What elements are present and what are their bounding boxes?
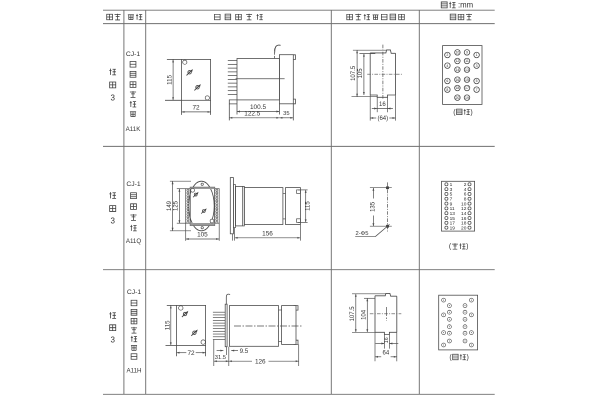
svg-text:8: 8 — [446, 88, 448, 92]
svg-text:2: 2 — [446, 53, 448, 57]
svg-text:115: 115 — [164, 320, 171, 330]
svg-text:16: 16 — [379, 102, 386, 108]
svg-text:(64): (64) — [377, 116, 388, 122]
svg-text:16: 16 — [384, 337, 390, 343]
svg-text:72: 72 — [192, 105, 200, 112]
svg-text:3: 3 — [110, 335, 115, 344]
svg-text:125: 125 — [174, 200, 180, 211]
svg-text:126: 126 — [255, 358, 266, 365]
svg-text:105: 105 — [197, 232, 208, 239]
svg-text:): ) — [466, 244, 468, 251]
svg-text:5: 5 — [476, 79, 478, 83]
svg-text:31.5: 31.5 — [215, 355, 226, 361]
svg-text::mm: :mm — [458, 1, 473, 10]
svg-text:9.5: 9.5 — [240, 348, 249, 355]
svg-text:20: 20 — [461, 225, 467, 231]
svg-text:104: 104 — [361, 309, 367, 320]
svg-text:17: 17 — [465, 86, 469, 90]
svg-text:72: 72 — [187, 350, 195, 357]
svg-text:A11Q: A11Q — [126, 238, 142, 245]
svg-text:135: 135 — [370, 201, 376, 212]
svg-text:19: 19 — [450, 225, 456, 231]
svg-text:A11H: A11H — [126, 367, 141, 374]
svg-text:115: 115 — [167, 74, 174, 84]
svg-text:CJ-1: CJ-1 — [126, 51, 141, 58]
svg-text:107.5: 107.5 — [350, 306, 356, 322]
svg-text:6: 6 — [446, 79, 448, 83]
svg-text:107.5: 107.5 — [351, 65, 357, 81]
svg-text:2-Φ5: 2-Φ5 — [356, 231, 369, 237]
svg-text:9: 9 — [466, 51, 468, 55]
svg-text:149: 149 — [167, 200, 173, 211]
svg-text:3: 3 — [110, 217, 115, 226]
svg-text:105: 105 — [358, 68, 364, 79]
svg-text:19: 19 — [465, 96, 469, 100]
svg-text:1: 1 — [476, 53, 478, 57]
svg-text:CJ-1: CJ-1 — [127, 289, 142, 296]
svg-text:115: 115 — [306, 201, 312, 211]
svg-text:16: 16 — [455, 78, 459, 82]
svg-text:156: 156 — [262, 230, 273, 237]
svg-text:7: 7 — [476, 88, 478, 92]
svg-text:CJ-1: CJ-1 — [126, 181, 141, 188]
svg-text:35: 35 — [283, 111, 289, 117]
svg-text:A11K: A11K — [126, 126, 142, 133]
svg-text:13: 13 — [465, 68, 469, 72]
svg-text:10: 10 — [455, 51, 459, 55]
svg-text:): ) — [467, 354, 469, 361]
svg-text:3: 3 — [476, 64, 478, 68]
svg-text:64: 64 — [383, 351, 390, 357]
svg-text:18: 18 — [455, 86, 459, 90]
svg-text:3: 3 — [110, 94, 115, 103]
svg-text:122.5: 122.5 — [244, 111, 260, 118]
svg-text:12: 12 — [455, 59, 459, 63]
svg-text:): ) — [470, 109, 472, 116]
svg-text:15: 15 — [465, 78, 469, 82]
svg-text:20: 20 — [455, 96, 459, 100]
svg-text:11: 11 — [465, 59, 469, 63]
svg-text:14: 14 — [455, 68, 459, 72]
svg-text:4: 4 — [446, 64, 448, 68]
